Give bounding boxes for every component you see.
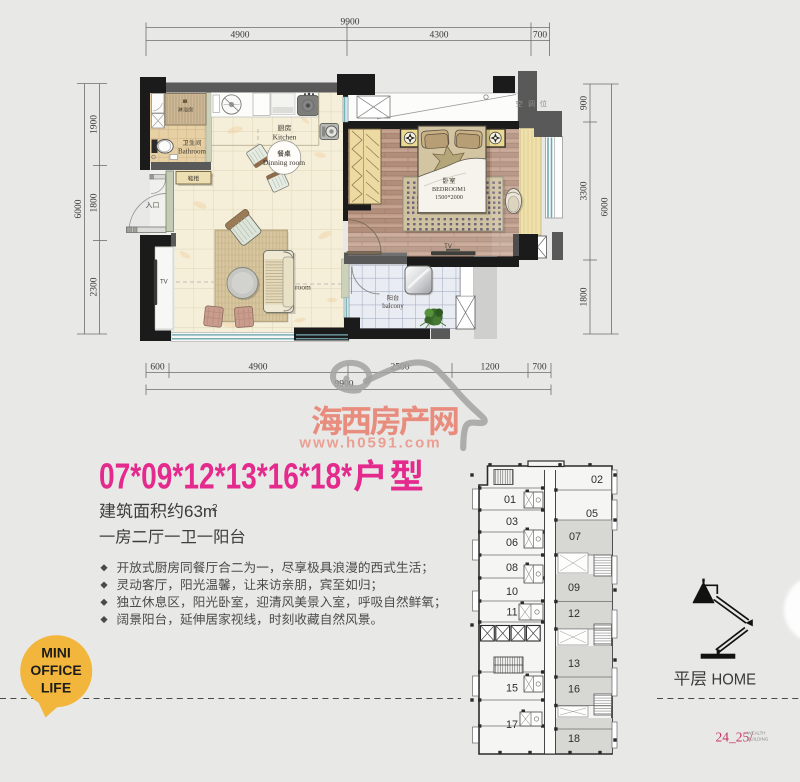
svg-text:08: 08 [506, 562, 518, 574]
svg-text:13: 13 [568, 658, 580, 670]
svg-text:700: 700 [532, 363, 547, 373]
svg-text:4900: 4900 [249, 363, 268, 373]
svg-text:1800: 1800 [90, 193, 100, 212]
svg-text:06: 06 [506, 537, 518, 549]
svg-text:Kitchen: Kitchen [273, 133, 297, 142]
svg-text:03: 03 [506, 516, 518, 528]
svg-text:BUILDING: BUILDING [748, 737, 769, 742]
svg-text:1800: 1800 [580, 287, 590, 306]
svg-text:1900: 1900 [90, 115, 100, 134]
svg-text:MINI: MINI [41, 645, 71, 661]
svg-text:17: 17 [506, 719, 518, 731]
svg-text:TV: TV [160, 280, 168, 286]
svg-text:OFFICE: OFFICE [30, 662, 81, 678]
svg-text:Dinning room: Dinning room [263, 158, 305, 167]
svg-text:2300: 2300 [90, 277, 100, 296]
svg-text:900: 900 [580, 96, 590, 111]
svg-text:16: 16 [568, 684, 580, 696]
svg-text:700: 700 [533, 31, 548, 41]
svg-text:4300: 4300 [430, 31, 449, 41]
svg-text:WEALTH: WEALTH [748, 731, 766, 736]
svg-text:11: 11 [506, 607, 517, 619]
svg-text:LIFE: LIFE [41, 680, 71, 696]
svg-text:09: 09 [568, 582, 580, 594]
svg-text:15: 15 [506, 683, 518, 695]
svg-text:18: 18 [568, 733, 580, 745]
svg-text:www.h0591.com: www.h0591.com [298, 435, 441, 452]
svg-text:12: 12 [568, 608, 580, 620]
svg-text:01: 01 [504, 494, 516, 506]
svg-text:02: 02 [591, 474, 603, 486]
svg-text:room: room [295, 283, 311, 292]
svg-text:9900: 9900 [341, 18, 360, 28]
svg-text:3300: 3300 [580, 181, 590, 200]
svg-text:6000: 6000 [74, 199, 84, 218]
svg-text:HOME: HOME [712, 672, 757, 689]
svg-text:BEDROOM1: BEDROOM1 [432, 186, 466, 193]
svg-text:07*09*12*13*16*18*: 07*09*12*13*16*18* [99, 456, 353, 497]
svg-text:05: 05 [586, 508, 598, 520]
svg-text:Bathroom: Bathroom [178, 148, 207, 156]
svg-text:07: 07 [569, 531, 581, 543]
svg-text:4900: 4900 [231, 31, 250, 41]
svg-text:2: 2 [212, 503, 218, 514]
svg-text:1200: 1200 [481, 363, 500, 373]
svg-text:TV: TV [444, 244, 452, 250]
svg-text:600: 600 [150, 363, 165, 373]
svg-text:1500*2000: 1500*2000 [435, 194, 463, 201]
svg-text:balcony: balcony [382, 303, 404, 310]
svg-text:6000: 6000 [601, 197, 611, 216]
svg-text:10: 10 [506, 586, 518, 598]
